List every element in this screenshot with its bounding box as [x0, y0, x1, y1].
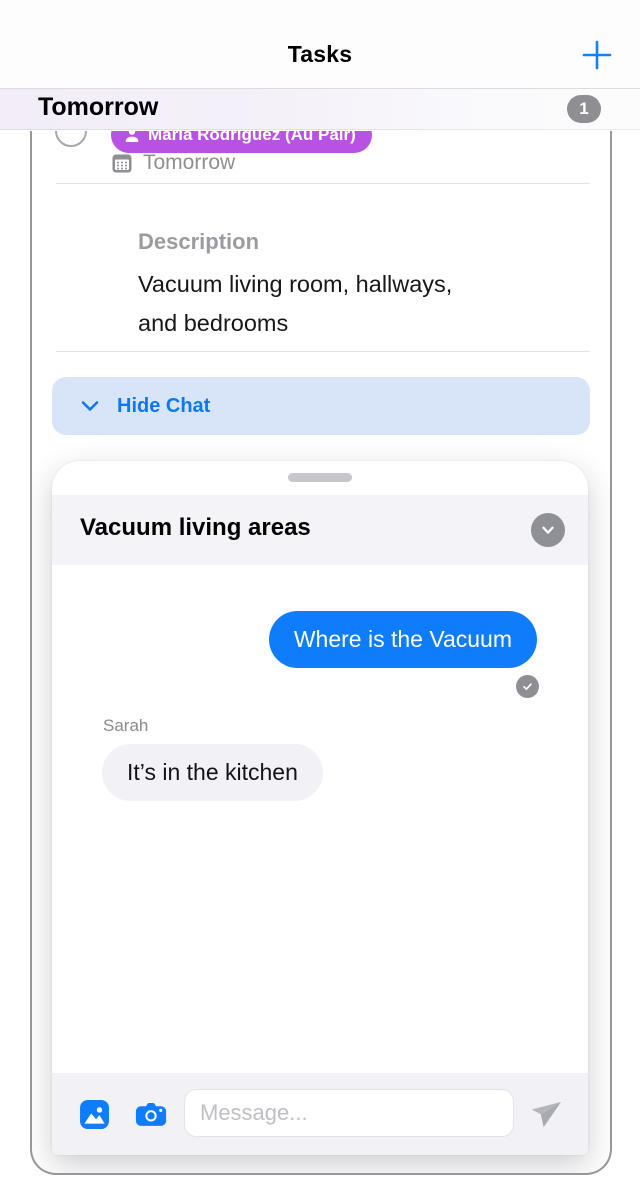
task-checkbox[interactable]: [55, 131, 87, 147]
section-count-badge: 1: [567, 95, 601, 123]
paper-plane-icon: [527, 1096, 565, 1132]
message-sender-name: Sarah: [103, 716, 148, 736]
page-title: Tasks: [0, 41, 640, 68]
send-button[interactable]: [527, 1095, 565, 1133]
add-task-button[interactable]: [580, 38, 614, 72]
chat-title: Vacuum living areas: [80, 514, 311, 542]
message-input-bar: [52, 1073, 588, 1155]
message-input[interactable]: [184, 1089, 514, 1137]
camera-icon: [135, 1099, 167, 1129]
message-bubble-outgoing: Where is the Vacuum: [269, 611, 537, 668]
divider: [56, 351, 590, 352]
nav-bar: Tasks: [0, 0, 640, 88]
due-date-label: Tomorrow: [143, 151, 235, 175]
person-icon: [123, 131, 141, 144]
camera-button[interactable]: [135, 1098, 167, 1130]
section-title: Tomorrow: [38, 93, 158, 122]
description-label: Description: [138, 229, 259, 255]
screen: Tasks Tomorrow 1 Maria Rodriguez (Au Pai…: [0, 0, 640, 1179]
assignee-name: Maria Rodriguez (Au Pair): [148, 131, 356, 145]
divider: [56, 183, 590, 184]
photo-icon: [79, 1099, 111, 1130]
photo-library-button[interactable]: [79, 1098, 111, 1130]
plus-icon: [580, 60, 614, 75]
collapse-chat-button[interactable]: [531, 513, 565, 547]
section-header-tomorrow[interactable]: Tomorrow 1: [0, 88, 640, 130]
chat-sheet: Vacuum living areas Where is the Vacuum …: [52, 461, 588, 1155]
chevron-down-circle-icon: [539, 521, 557, 539]
task-detail-card: Maria Rodriguez (Au Pair) Tomorrow Descr…: [30, 131, 612, 1175]
description-text: Vacuum living room, hallways, and bedroo…: [138, 265, 478, 343]
hide-chat-button[interactable]: Hide Chat: [52, 377, 590, 435]
message-bubble-incoming: It’s in the kitchen: [102, 744, 323, 801]
delivered-indicator: [516, 675, 539, 698]
due-date-row: Tomorrow: [110, 151, 235, 175]
checkmark-icon: [521, 680, 534, 693]
drag-handle[interactable]: [288, 473, 352, 482]
chevron-down-icon: [78, 394, 102, 418]
chat-header: Vacuum living areas: [52, 495, 588, 565]
assignee-pill[interactable]: Maria Rodriguez (Au Pair): [111, 131, 372, 153]
calendar-icon: [110, 151, 134, 175]
hide-chat-label: Hide Chat: [117, 395, 210, 418]
